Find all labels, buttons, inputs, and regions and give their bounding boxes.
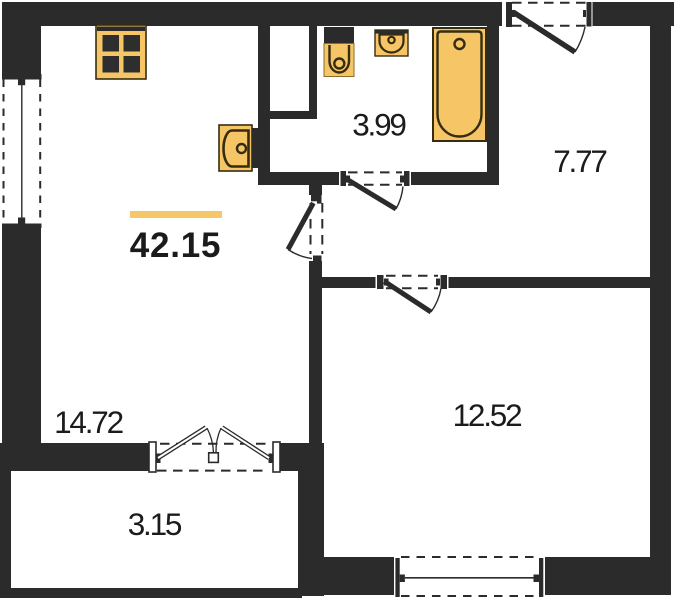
- svg-text:14.72: 14.72: [54, 404, 123, 440]
- svg-text:42.15: 42.15: [130, 226, 222, 265]
- svg-text:7.77: 7.77: [553, 143, 606, 179]
- svg-text:12.52: 12.52: [453, 397, 522, 433]
- svg-text:3.15: 3.15: [128, 506, 182, 542]
- svg-text:3.99: 3.99: [352, 107, 406, 143]
